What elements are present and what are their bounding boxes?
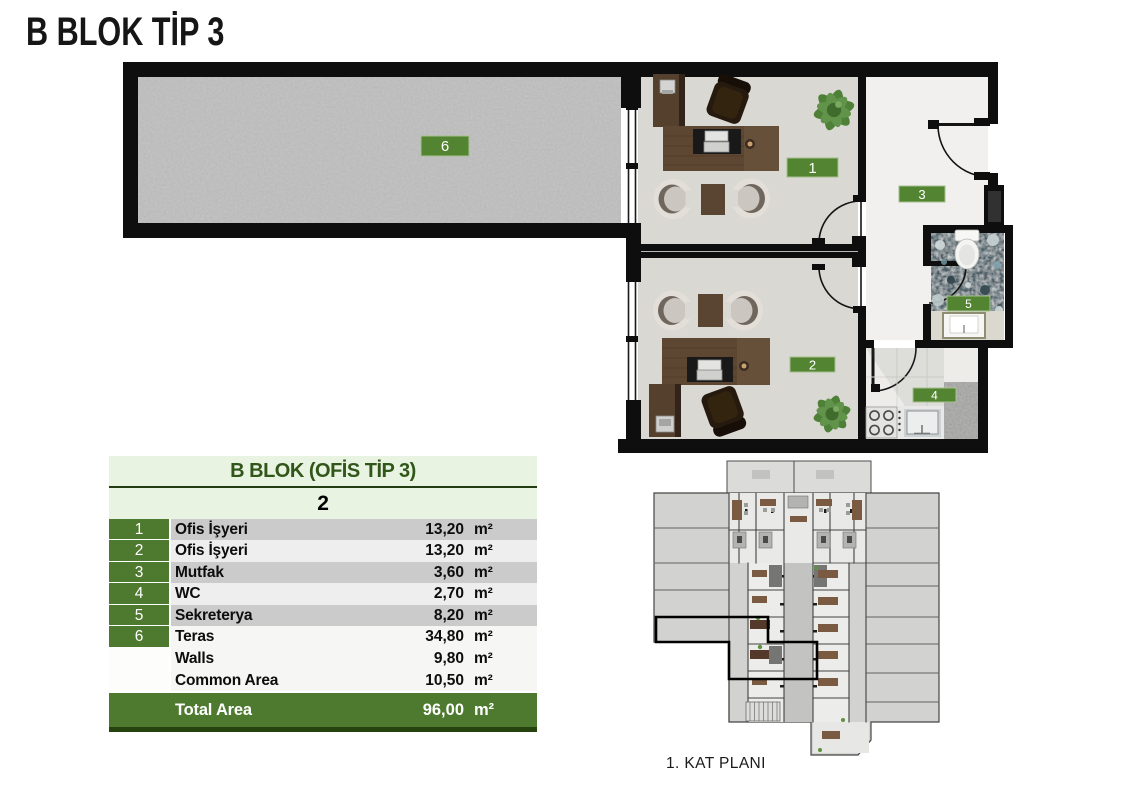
svg-text:4: 4: [931, 389, 938, 403]
svg-text:1: 1: [808, 160, 816, 177]
svg-text:6: 6: [441, 138, 449, 155]
svg-text:2: 2: [809, 358, 816, 373]
svg-text:3: 3: [918, 187, 925, 202]
svg-text:5: 5: [965, 297, 972, 311]
